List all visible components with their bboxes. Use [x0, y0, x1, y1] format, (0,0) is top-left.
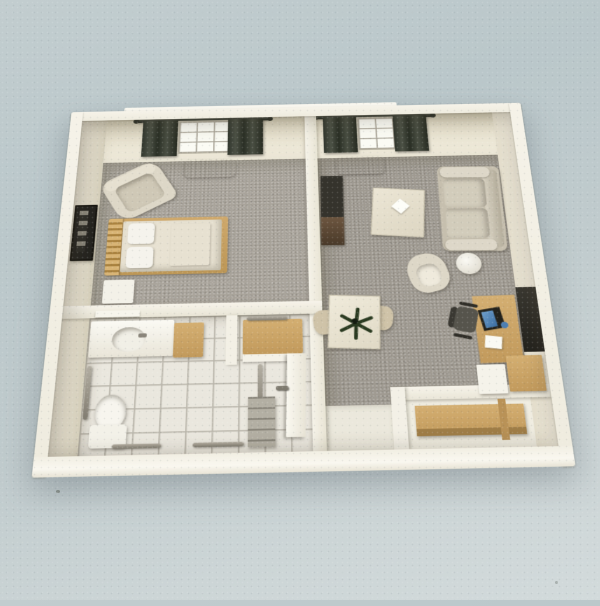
tv-cabinet-base [321, 217, 345, 245]
blanket [170, 223, 211, 266]
closet-shelf [243, 319, 303, 355]
tv-cabinet [320, 176, 344, 245]
curtain-living-left [323, 117, 358, 153]
wooden-cabinet [506, 355, 547, 392]
napkin [391, 199, 410, 214]
alcove-counter [415, 404, 528, 437]
plant-pot [352, 318, 359, 324]
bathroom-wall-shelf [95, 310, 140, 317]
curtain-bedroom-left [141, 120, 178, 156]
floor-plan-rotation [0, 0, 600, 606]
shelf-steps [248, 396, 276, 447]
scene-description: Scanned 3D architectural rendering of a … [0, 0, 1, 1]
paper-speck [555, 581, 558, 584]
curtain-living-right [392, 115, 429, 151]
blue-cup [500, 322, 508, 329]
nightstand [102, 280, 135, 304]
sofa [437, 166, 508, 251]
curtain-bedroom-right [227, 118, 263, 154]
bed [104, 216, 228, 275]
floor-plan [32, 103, 576, 478]
sofa-armrest [445, 239, 498, 251]
monitor-screen [481, 310, 498, 328]
sofa-cushion [445, 208, 490, 237]
closet-divider-wall [226, 315, 238, 365]
vanity-wood-cabinet [173, 322, 204, 357]
sofa-armrest [439, 167, 490, 178]
sofa-cushion [443, 179, 487, 208]
white-cabinet [476, 364, 508, 394]
office-chair [446, 298, 484, 342]
entry-vinyl-floor [325, 405, 394, 451]
armchair-cushion [414, 262, 445, 288]
door [286, 353, 306, 437]
sink-basin [111, 327, 146, 352]
paper-speck [56, 490, 60, 493]
grab-bar [247, 316, 288, 321]
pillow [125, 247, 153, 269]
door-handle [276, 386, 289, 391]
bedroom-window [177, 120, 232, 154]
bedroom-radiator [184, 159, 236, 178]
vanity-sink [88, 320, 174, 358]
faucet [138, 333, 147, 337]
dining-table [328, 295, 381, 350]
office-chair-seat [453, 306, 479, 334]
living-radiator [336, 156, 385, 175]
pillow [127, 223, 155, 244]
picture-frame-art [76, 211, 89, 252]
papers [485, 335, 502, 349]
coffee-table [371, 187, 425, 237]
